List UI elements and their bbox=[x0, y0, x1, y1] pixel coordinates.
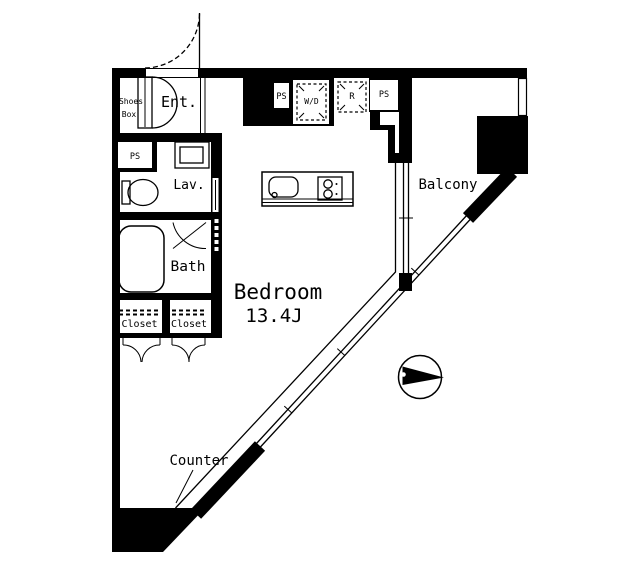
toilet-tank bbox=[122, 181, 130, 204]
diagonal-window-line-2 bbox=[260, 218, 472, 448]
lavatory-label: Lav. bbox=[173, 178, 204, 193]
refrigerator-label: R bbox=[349, 92, 355, 102]
stove-burner-top bbox=[324, 180, 332, 188]
entry-door bbox=[145, 13, 200, 68]
balcony-column bbox=[477, 116, 528, 174]
entry-door-opening bbox=[145, 69, 199, 77]
stove-knob-bottom bbox=[336, 193, 338, 195]
compass-north-icon bbox=[399, 356, 445, 399]
ps-top-left-label: PS bbox=[276, 92, 286, 102]
floor-plan-canvas: Shoes Box Ent. PS W/D R PS PS Lav. Bath … bbox=[0, 0, 640, 569]
vanity-basin bbox=[180, 147, 203, 163]
stove-burner-bottom bbox=[324, 190, 332, 198]
closet-left-label: Closet bbox=[121, 319, 157, 330]
floor-plan-drawing: Shoes Box Ent. PS W/D R PS PS Lav. Bath … bbox=[0, 0, 640, 569]
balcony-partition-wall bbox=[399, 68, 412, 163]
toilet-bowl bbox=[128, 180, 158, 206]
closet-left-door-arc-b bbox=[142, 345, 160, 362]
closet-right-label: Closet bbox=[171, 319, 207, 330]
bathtub-outline bbox=[119, 226, 164, 292]
closet-divider-wall bbox=[162, 293, 170, 338]
labels: Shoes Box Ent. PS W/D R PS PS Lav. Bath … bbox=[119, 90, 478, 469]
shoes-box-label-line2: Box bbox=[122, 110, 137, 119]
compass-needle bbox=[403, 367, 445, 386]
entrance-step bbox=[201, 78, 206, 133]
kitchen-sink bbox=[269, 177, 298, 197]
bath-label: Bath bbox=[171, 259, 206, 275]
ps-side-label: PS bbox=[130, 152, 140, 162]
bedroom-label: Bedroom bbox=[234, 280, 323, 304]
bedroom-size-label: 13.4J bbox=[245, 305, 302, 327]
kitchen-step-wall bbox=[370, 110, 395, 158]
compass-needle-notch bbox=[401, 372, 406, 377]
toilet bbox=[122, 180, 158, 206]
closet-doors bbox=[123, 338, 205, 362]
stove-knob-top bbox=[336, 183, 338, 185]
balcony-label: Balcony bbox=[418, 177, 477, 193]
closet-left-door-arc-a bbox=[123, 345, 141, 362]
closet-right-door-arc-a bbox=[172, 345, 189, 362]
balcony-rail bbox=[519, 79, 527, 116]
vanity-sink bbox=[175, 142, 209, 168]
closet-right-door-arc-b bbox=[189, 345, 205, 362]
corner-wall-chunk bbox=[112, 508, 205, 552]
kitchen-island bbox=[262, 172, 353, 206]
bathtub bbox=[119, 226, 164, 292]
shoes-box-label-line1: Shoes bbox=[119, 97, 143, 106]
lavatory-bath-wall bbox=[112, 212, 222, 220]
bath-door bbox=[173, 223, 206, 249]
ps-top-right-label: PS bbox=[379, 90, 389, 100]
closet-front-wall bbox=[112, 333, 222, 338]
entry-door-swing-arc bbox=[145, 13, 200, 68]
entrance-label: Ent. bbox=[161, 93, 197, 111]
counter-label: Counter bbox=[169, 453, 228, 469]
washer-dryer-label: W/D bbox=[304, 97, 319, 106]
